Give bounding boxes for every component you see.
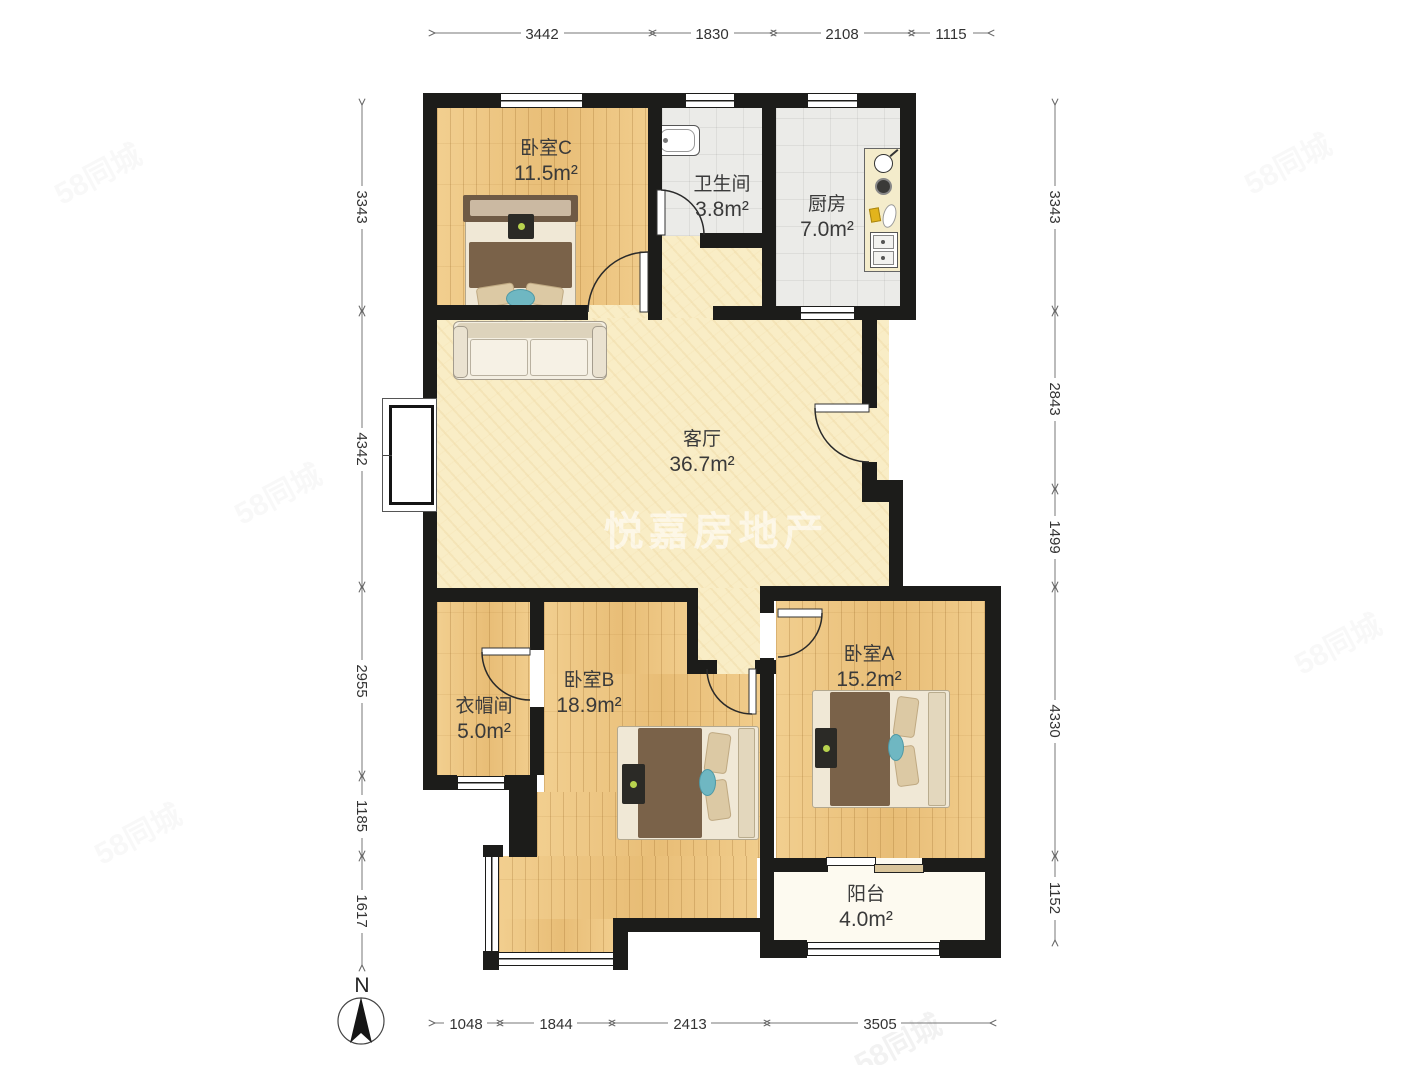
room-area: 15.2m² [836,667,901,692]
dim-top-1: 1830 [695,26,728,43]
dim-bottom-2: 2413 [673,1016,706,1033]
room-label-cloakroom: 衣帽间 5.0m² [455,696,512,744]
room-name: 阳台 [839,884,893,907]
room-name: 衣帽间 [455,696,512,719]
north-compass-icon: N [338,974,384,1044]
dim-bottom-1: 1844 [539,1016,572,1033]
door-cloakroom [482,648,530,700]
dim-right-0: 3343 [1046,190,1063,223]
room-name: 卧室B [556,670,621,693]
door-entrance [815,404,869,462]
dim-top-3: 1115 [935,26,966,43]
room-label-bedroom-a: 卧室A 15.2m² [836,644,901,692]
room-name: 客厅 [669,429,734,452]
compass-north-label: N [354,974,369,997]
agency-watermark: 悦嘉房地产 [604,499,829,557]
room-name: 厨房 [800,194,854,217]
room-area: 36.7m² [669,452,734,477]
dim-top-2: 2108 [825,26,858,43]
dim-bottom-0: 1048 [449,1016,482,1033]
room-area: 4.0m² [839,907,893,932]
room-name: 卧室C [514,138,578,161]
room-label-balcony: 阳台 4.0m² [839,884,893,932]
room-label-bathroom: 卫生间 3.8m² [693,174,750,222]
dim-bottom-3: 3505 [863,1016,896,1033]
dim-right-2: 1499 [1046,520,1063,553]
room-label-bedroom-b: 卧室B 18.9m² [556,670,621,718]
door-bedroom-a [778,609,822,657]
dim-right-1: 2843 [1046,382,1063,415]
room-label-kitchen: 厨房 7.0m² [800,194,854,242]
room-name: 卧室A [836,644,901,667]
dim-right-4: 1152 [1046,882,1063,914]
door-bedroom-c [588,252,648,312]
room-name: 卫生间 [693,174,750,197]
dim-left-2: 2955 [353,664,370,697]
door-bedroom-b [707,669,756,714]
room-area: 3.8m² [693,197,750,222]
dim-right-3: 4330 [1046,704,1063,737]
room-area: 18.9m² [556,693,621,718]
room-area: 5.0m² [455,719,512,744]
room-label-living-room: 客厅 36.7m² [669,429,734,477]
room-area: 11.5m² [514,161,578,186]
room-label-bedroom-c: 卧室C 11.5m² [514,138,578,186]
dim-left-0: 3343 [353,190,370,223]
floor-plan-canvas: 58同城 58同城 58同城 58同城 58同城 58同城 [0,0,1420,1065]
dim-left-3: 1185 [353,800,370,832]
dim-top-0: 3442 [525,26,558,43]
room-area: 7.0m² [800,217,854,242]
dim-left-1: 4342 [353,432,370,465]
dim-left-4: 1617 [353,894,370,927]
